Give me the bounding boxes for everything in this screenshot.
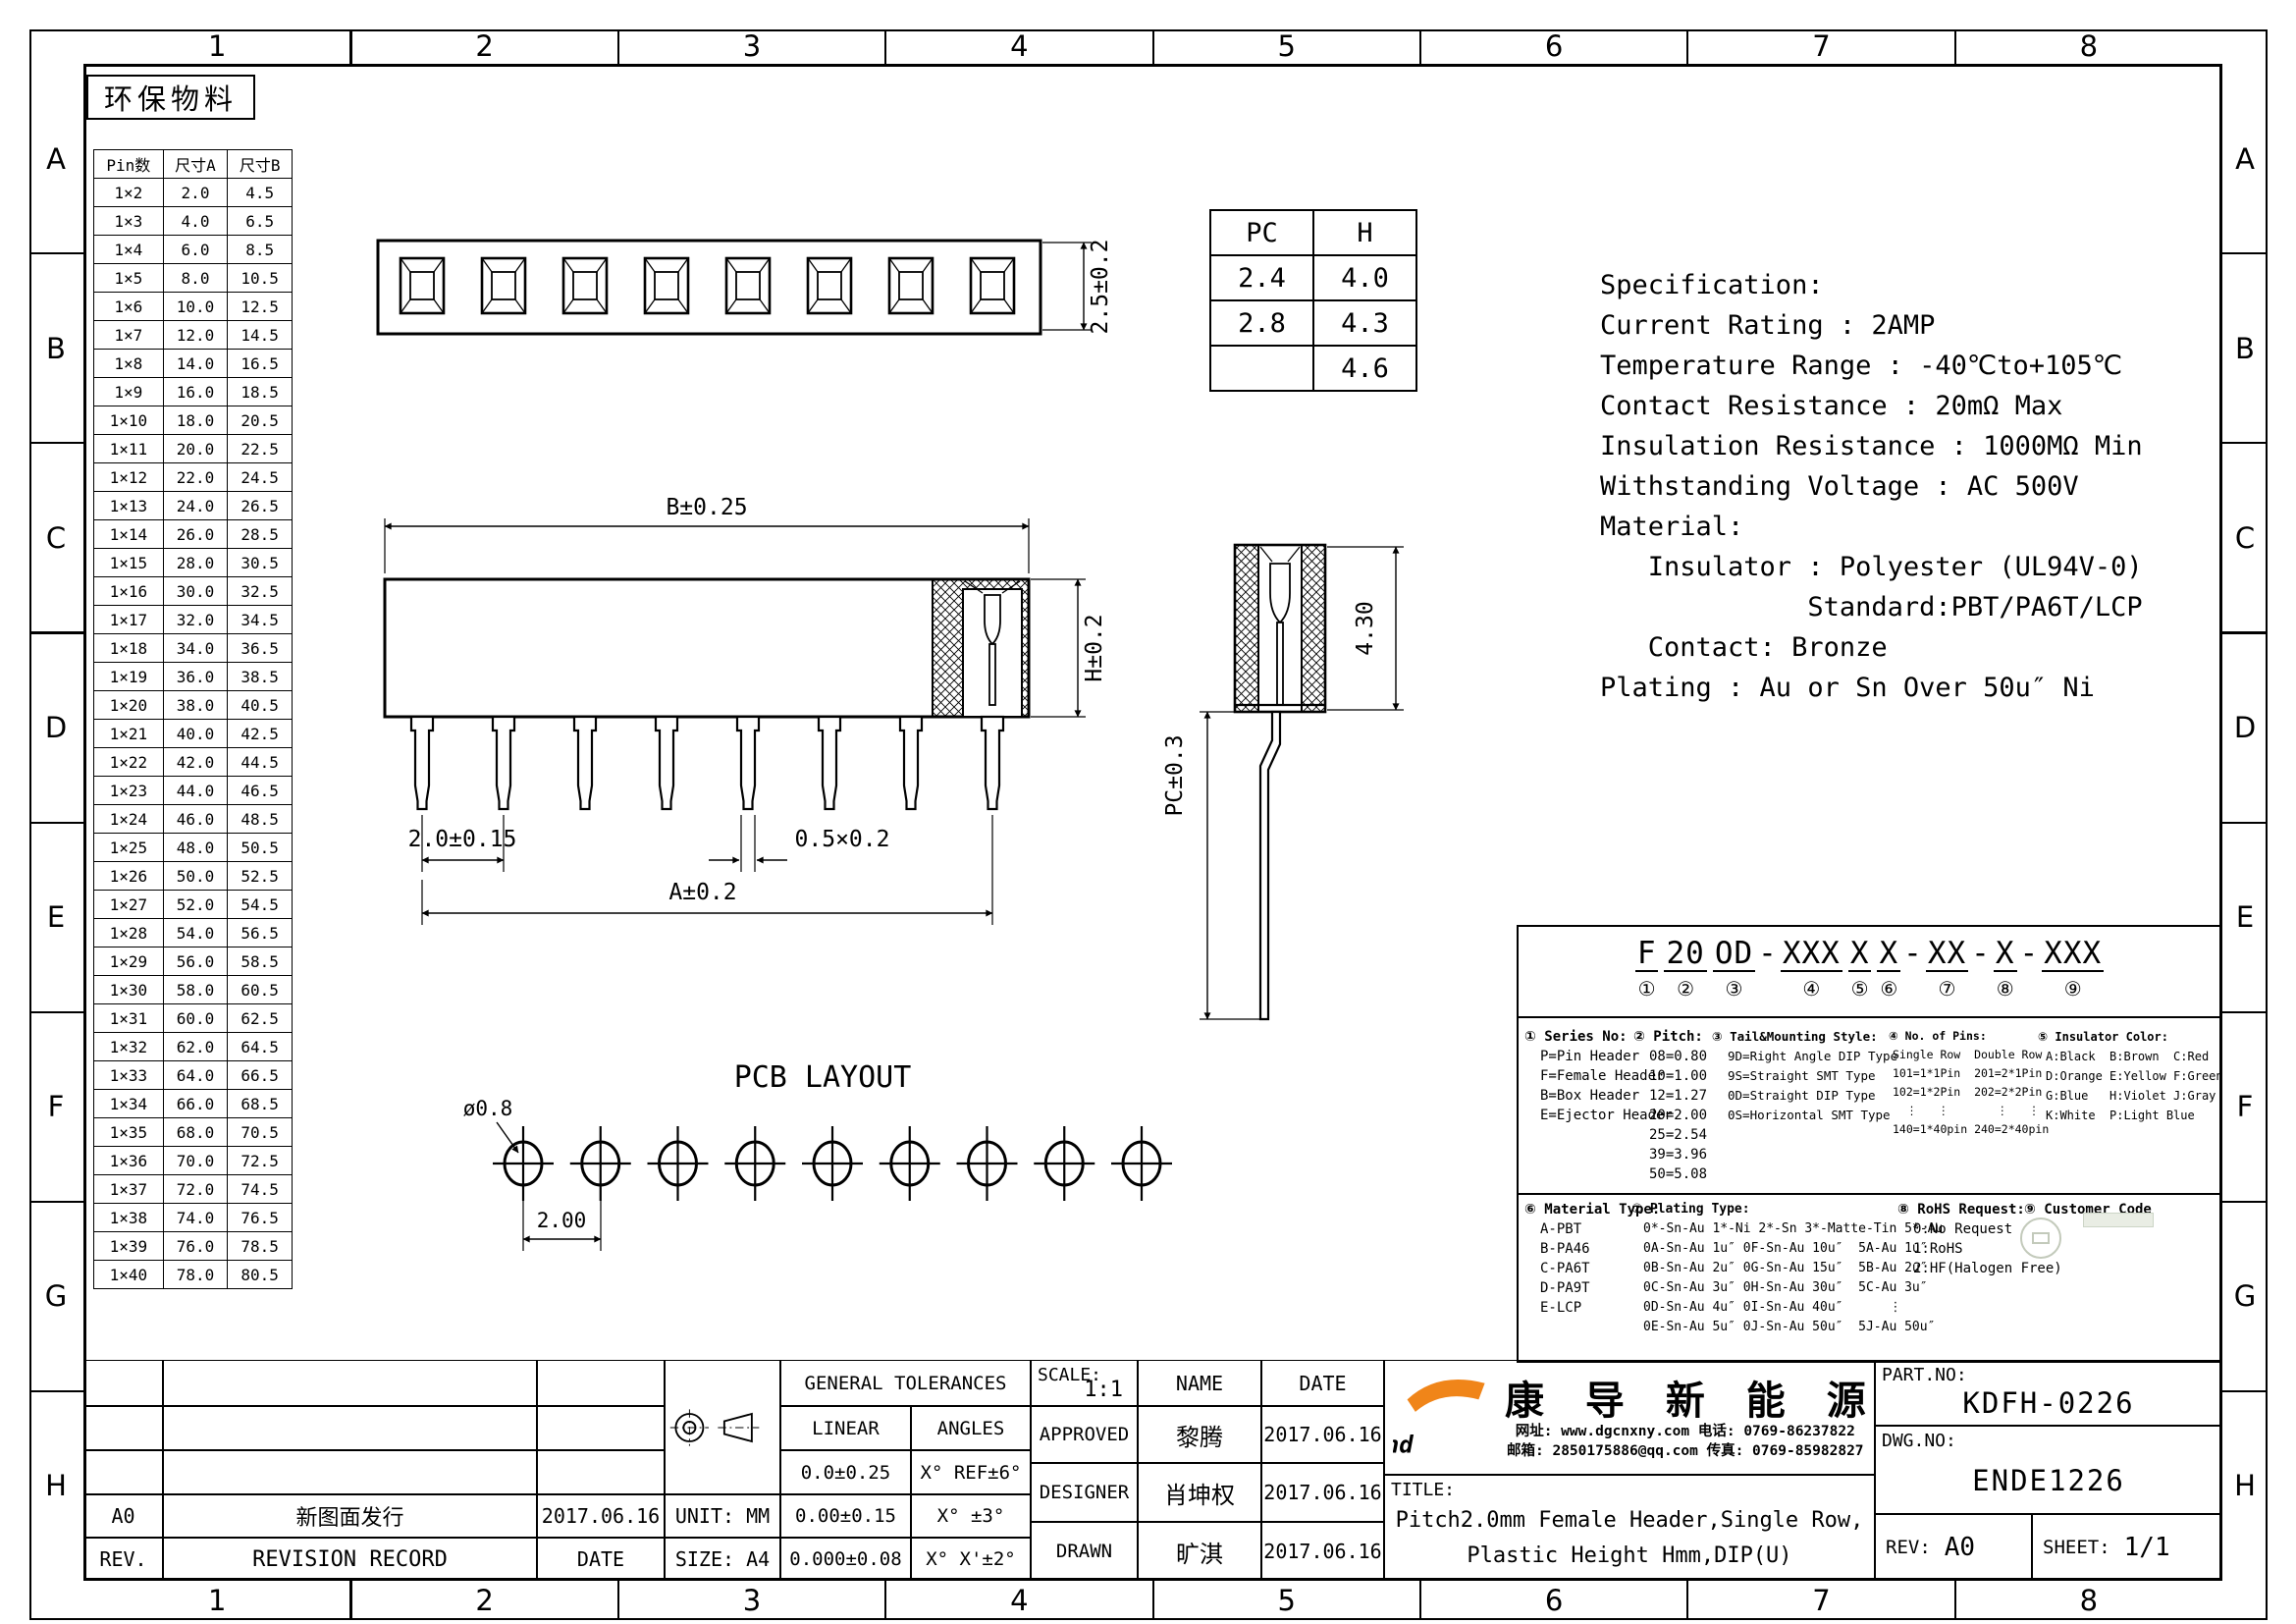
code-segment: XXX⑨ — [2042, 937, 2104, 1001]
ordering-block-line: 0D=Straight DIP Type — [1728, 1086, 1897, 1106]
tolerances-title: GENERAL TOLERANCES — [780, 1360, 1031, 1406]
company-contact: 网址: www.dgcnxny.com 电话: 0769-86237822 邮箱… — [1507, 1422, 1864, 1461]
company-name: 康 导 新 能 源 — [1505, 1369, 1880, 1426]
designer-name: 肖坤权 — [1138, 1463, 1261, 1522]
name-header: NAME — [1138, 1360, 1261, 1406]
ordering-block-line: 101=1*1Pin 201=2*1Pin — [1893, 1064, 2049, 1083]
code-separator: - — [1971, 937, 1991, 999]
tolerance-angle-2: X° ±3° — [911, 1494, 1031, 1538]
revision-empty-cell — [537, 1406, 665, 1450]
rev-label: REV: — [1886, 1537, 1931, 1558]
scale-cell: SCALE: 1:1 — [1031, 1360, 1138, 1406]
sheet-label: SHEET: — [2043, 1537, 2110, 1558]
part-no-label: PART.NO: — [1882, 1365, 1967, 1385]
svg-text:hd: hd — [1393, 1431, 1414, 1458]
ordering-block-line: 102=1*2Pin 202=2*2Pin — [1893, 1083, 2049, 1102]
code-segment: X⑤ — [1848, 937, 1872, 1001]
ordering-block-line: K:White P:Light Blue — [2046, 1106, 2223, 1125]
dwg-no-cell: DWG.NO: ENDE1226 — [1875, 1426, 2222, 1514]
pin — [737, 717, 759, 809]
revision-empty-cell — [83, 1360, 163, 1406]
tolerances-linear-header: LINEAR — [780, 1406, 911, 1450]
designer-role: DESIGNER — [1031, 1463, 1138, 1522]
ordering-block-line: 50=5.08 — [1649, 1164, 1707, 1184]
ordering-block-line: 25=2.54 — [1649, 1125, 1707, 1145]
hd-logo-icon: hd — [1393, 1365, 1495, 1467]
ordering-block-line: 0S=Horizontal SMT Type — [1728, 1106, 1897, 1125]
pin — [819, 717, 840, 809]
part-number-formula: F①20②OD③- XXX④X⑤X⑥- XX⑦- X⑧- XXX⑨ — [1517, 937, 2222, 1001]
dim-hole-diameter: ø0.8 — [463, 1097, 513, 1120]
designer-date: 2017.06.16 — [1261, 1463, 1384, 1522]
customer-code-stamp — [2083, 1213, 2154, 1227]
pin — [982, 717, 1003, 809]
revision-record-value: 新图面发行 — [163, 1494, 537, 1538]
ordering-block-line: G:Blue H:Violet J:Gray — [2046, 1086, 2223, 1106]
code-separator: - — [2020, 937, 2040, 999]
sheet-cell: SHEET: 1/1 — [2032, 1514, 2222, 1581]
front-view: B±0.25 H±0.2 2.0±0.15 0.5×0.2 A±0.2 — [385, 495, 1107, 925]
code-separator: - — [1903, 937, 1923, 999]
company-logo-cell: hd 康 导 新 能 源 网址: www.dgcnxny.com 电话: 076… — [1384, 1360, 1875, 1475]
pcb-layout: PCB LAYOUT ø0.8 2.00 — [463, 1060, 1172, 1251]
code-segment: X⑥ — [1877, 937, 1900, 1001]
code-segment: 20② — [1664, 937, 1706, 1001]
unit-cell: UNIT: MM — [665, 1494, 780, 1538]
code-separator: - — [1758, 937, 1778, 999]
revision-empty-cell — [163, 1360, 537, 1406]
ordering-block-line: Single Row Double Row — [1893, 1046, 2049, 1064]
approved-name: 黎腾 — [1138, 1406, 1261, 1463]
code-segment: OD③ — [1713, 937, 1755, 1001]
revision-rev-header: REV. — [83, 1538, 163, 1581]
dim-pin-section: 0.5×0.2 — [795, 827, 890, 852]
tolerance-angle-1: X° REF±6° — [911, 1450, 1031, 1494]
revision-date-value: 2017.06.16 — [537, 1494, 665, 1538]
ordering-block-line: 140=1*40pin 240=2*40pin — [1893, 1120, 2049, 1139]
tolerance-linear-3: 0.000±0.08 — [780, 1538, 911, 1581]
revision-date-header: DATE — [537, 1538, 665, 1581]
ordering-block-heading: ⑤ Insulator Color: — [2038, 1027, 2223, 1047]
tolerance-linear-1: 0.0±0.25 — [780, 1450, 911, 1494]
ordering-block-heading: ④ No. of Pins: — [1889, 1027, 2049, 1046]
pin — [411, 717, 433, 809]
dim-front-height: H±0.2 — [1082, 614, 1107, 681]
approved-role: APPROVED — [1031, 1406, 1138, 1463]
ordering-block-line: 12=1.27 — [1649, 1086, 1707, 1106]
ordering-divider-1 — [1517, 1016, 2222, 1018]
ordering-block-heading: ② Pitch: — [1633, 1027, 1707, 1047]
ordering-block-line: D:Orange E:Yellow F:Green — [2046, 1066, 2223, 1086]
drawn-role: DRAWN — [1031, 1522, 1138, 1581]
code-segment: F① — [1635, 937, 1659, 1001]
top-view: 2.5±0.2 — [378, 240, 1113, 335]
ordering-block-line: 08=0.80 — [1649, 1047, 1707, 1066]
rev-cell: REV: A0 — [1875, 1514, 2032, 1581]
revision-record-header: REVISION RECORD — [163, 1538, 537, 1581]
ordering-no-of-pins: ④ No. of Pins:Single Row Double Row101=1… — [1889, 1027, 2049, 1139]
ordering-block-line: ⋮ ⋮ ⋮ ⋮ — [1893, 1102, 2049, 1120]
size-cell: SIZE: A4 — [665, 1538, 780, 1581]
ordering-block-line: 20=2.00 — [1649, 1106, 1707, 1125]
side-view: 4.30 PC±0.3 — [1162, 545, 1404, 1019]
scale-value: 1:1 — [1084, 1378, 1123, 1402]
ordering-block-line: 0E-Sn-Au 5u″ 0J-Sn-Au 50u″ 5J-Au 50u″ — [1643, 1318, 1943, 1337]
dim-hole-pitch: 2.00 — [537, 1209, 587, 1232]
revision-empty-cell — [537, 1450, 665, 1494]
drawn-name: 旷淇 — [1138, 1522, 1261, 1581]
approved-date: 2017.06.16 — [1261, 1406, 1384, 1463]
dim-front-width: B±0.25 — [666, 495, 747, 520]
date-header: DATE — [1261, 1360, 1384, 1406]
ordering-block-line: 9S=Straight SMT Type — [1728, 1066, 1897, 1086]
ordering-block-line: 39=3.96 — [1649, 1145, 1707, 1164]
dim-pc: PC±0.3 — [1162, 734, 1188, 816]
projection-symbol-cell — [665, 1360, 780, 1494]
dwg-no-label: DWG.NO: — [1882, 1431, 1956, 1451]
ordering-block-heading: ③ Tail&Mounting Style: — [1712, 1027, 1897, 1047]
ordering-block-line: A:Black B:Brown C:Red — [2046, 1047, 2223, 1066]
revision-empty-cell — [163, 1450, 537, 1494]
code-segment: X⑧ — [1994, 937, 2017, 1001]
ordering-plating-type: ⑦ Plating Type:0*-Sn-Au 1*-Ni 2*-Sn 3*-M… — [1631, 1200, 1943, 1337]
pin — [574, 717, 596, 809]
ordering-block-line: 2:HF(Halogen Free) — [1913, 1259, 2062, 1278]
sheet-value: 1/1 — [2124, 1533, 2170, 1562]
drawing-title-cell: TITLE: Pitch2.0mm Female Header,Single R… — [1384, 1475, 1875, 1581]
revision-empty-cell — [83, 1406, 163, 1450]
dim-pin-span: A±0.2 — [668, 880, 736, 905]
ordering-tail-style: ③ Tail&Mounting Style:9D=Right Angle DIP… — [1712, 1027, 1897, 1125]
revision-empty-cell — [163, 1406, 537, 1450]
drawn-date: 2017.06.16 — [1261, 1522, 1384, 1581]
part-no-cell: PART.NO: KDFH-0226 — [1875, 1360, 2222, 1426]
company-seal-mark — [2020, 1218, 2061, 1259]
tolerances-angles-header: ANGLES — [911, 1406, 1031, 1450]
pin — [493, 717, 514, 809]
ordering-divider-2 — [1517, 1193, 2222, 1195]
dim-pin-pitch: 2.0±0.15 — [408, 827, 517, 852]
dwg-no-value: ENDE1226 — [1876, 1464, 2221, 1497]
title-label: TITLE: — [1391, 1480, 1455, 1500]
ordering-block-line: 9D=Right Angle DIP Type — [1728, 1047, 1897, 1066]
revision-empty-cell — [537, 1360, 665, 1406]
ordering-insulator-color: ⑤ Insulator Color:A:Black B:Brown C:RedD… — [2038, 1027, 2223, 1125]
part-no-value: KDFH-0226 — [1876, 1386, 2221, 1420]
third-angle-projection-icon — [667, 1407, 777, 1448]
dim-top-height: 2.5±0.2 — [1088, 240, 1113, 335]
ordering-pitch: ② Pitch:08=0.8010=1.0012=1.2720=2.0025=2… — [1633, 1027, 1707, 1184]
revision-empty-cell — [83, 1450, 163, 1494]
code-segment: XXX④ — [1781, 937, 1842, 1001]
drawing-title: Pitch2.0mm Female Header,Single Row, Pla… — [1385, 1503, 1874, 1574]
revision-rev-value: A0 — [83, 1494, 163, 1538]
ordering-block-heading: ⑦ Plating Type: — [1631, 1200, 1943, 1219]
code-segment: XX⑦ — [1926, 937, 1968, 1001]
pcb-layout-title: PCB LAYOUT — [734, 1060, 912, 1095]
ordering-block-line: 0C-Sn-Au 3u″ 0H-Sn-Au 30u″ 5C-Au 3u″ — [1643, 1278, 1943, 1298]
pin — [656, 717, 677, 809]
ordering-block-line: 0D-Sn-Au 4u″ 0I-Sn-Au 40u″ ⋮ — [1643, 1298, 1943, 1318]
drawing-sheet: { "zones": {"cols":["1","2","3","4","5",… — [0, 0, 2296, 1624]
tolerance-linear-2: 0.00±0.15 — [780, 1494, 911, 1538]
dim-side-height: 4.30 — [1353, 601, 1378, 655]
tolerance-angle-3: X° X'±2° — [911, 1538, 1031, 1581]
pin — [900, 717, 922, 809]
ordering-block-line: 10=1.00 — [1649, 1066, 1707, 1086]
rev-value: A0 — [1945, 1533, 1975, 1562]
